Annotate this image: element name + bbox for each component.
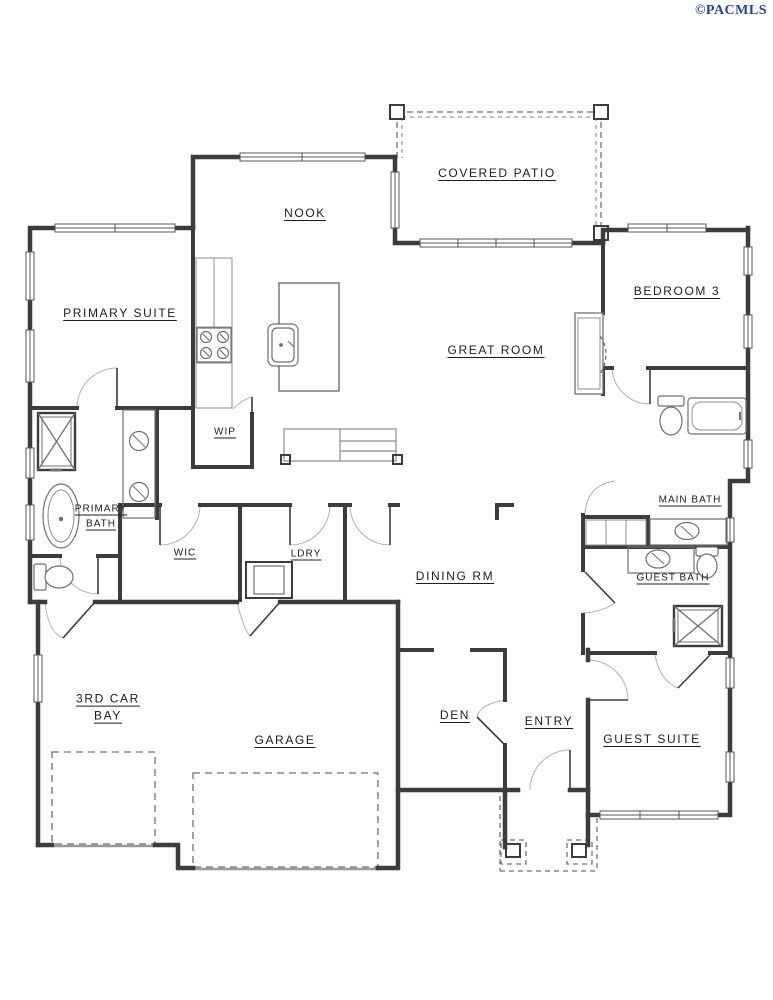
guest-shower-icon [674,606,722,646]
room-label-primary-suite: PRIMARY SUITE [63,306,177,320]
room-label-primary-bath: PRIMARY BATH [72,503,130,532]
primary-shower-icon [38,413,75,470]
porch-posts [506,844,586,857]
guest-bath-vanity [628,547,694,573]
room-label-great-room: GREAT ROOM [448,343,545,357]
room-label-wic: WIC [174,548,196,559]
room-label-3rd-car-bay: 3RD CAR BAY [71,691,145,726]
room-label-guest-bath: GUEST BATH [637,573,710,584]
room-label-ldry: LDRY [291,549,322,560]
main-bath-vanity [650,519,727,545]
room-label-main-bath: MAIN BATH [659,495,722,506]
room-label-covered-patio: COVERED PATIO [438,166,556,180]
washer-dryer [246,562,292,598]
porch-outline [500,796,597,871]
room-label-wip: WIP [214,427,236,438]
range-icon [197,328,231,362]
exterior-walls [30,157,748,868]
main-bath-tub-icon [688,398,746,434]
room-label-dining: DINING RM [416,569,494,583]
pacmls-watermark: ©PACMLS [695,3,767,19]
linen-closet [586,520,646,545]
floor-plan-drawing [0,0,773,1000]
door-leaves [63,368,710,790]
room-label-garage: GARAGE [255,733,316,747]
room-label-guest-suite: GUEST SUITE [603,732,700,746]
floor-plan: COVERED PATIO NOOK PRIMARY SUITE BEDROOM… [0,0,773,1000]
kitchen-sink-icon [268,324,298,366]
room-label-entry: ENTRY [525,714,573,728]
fireplace-icon [575,313,606,394]
room-label-den: DEN [440,708,470,722]
garage-door-sills [52,846,378,869]
room-label-nook: NOOK [284,206,326,220]
main-bath-toilet-icon [658,396,684,435]
media-console [281,429,402,464]
room-label-bedroom3: BEDROOM 3 [634,284,720,298]
primary-toilet-icon [34,564,73,590]
garage-door-openings [52,752,378,867]
